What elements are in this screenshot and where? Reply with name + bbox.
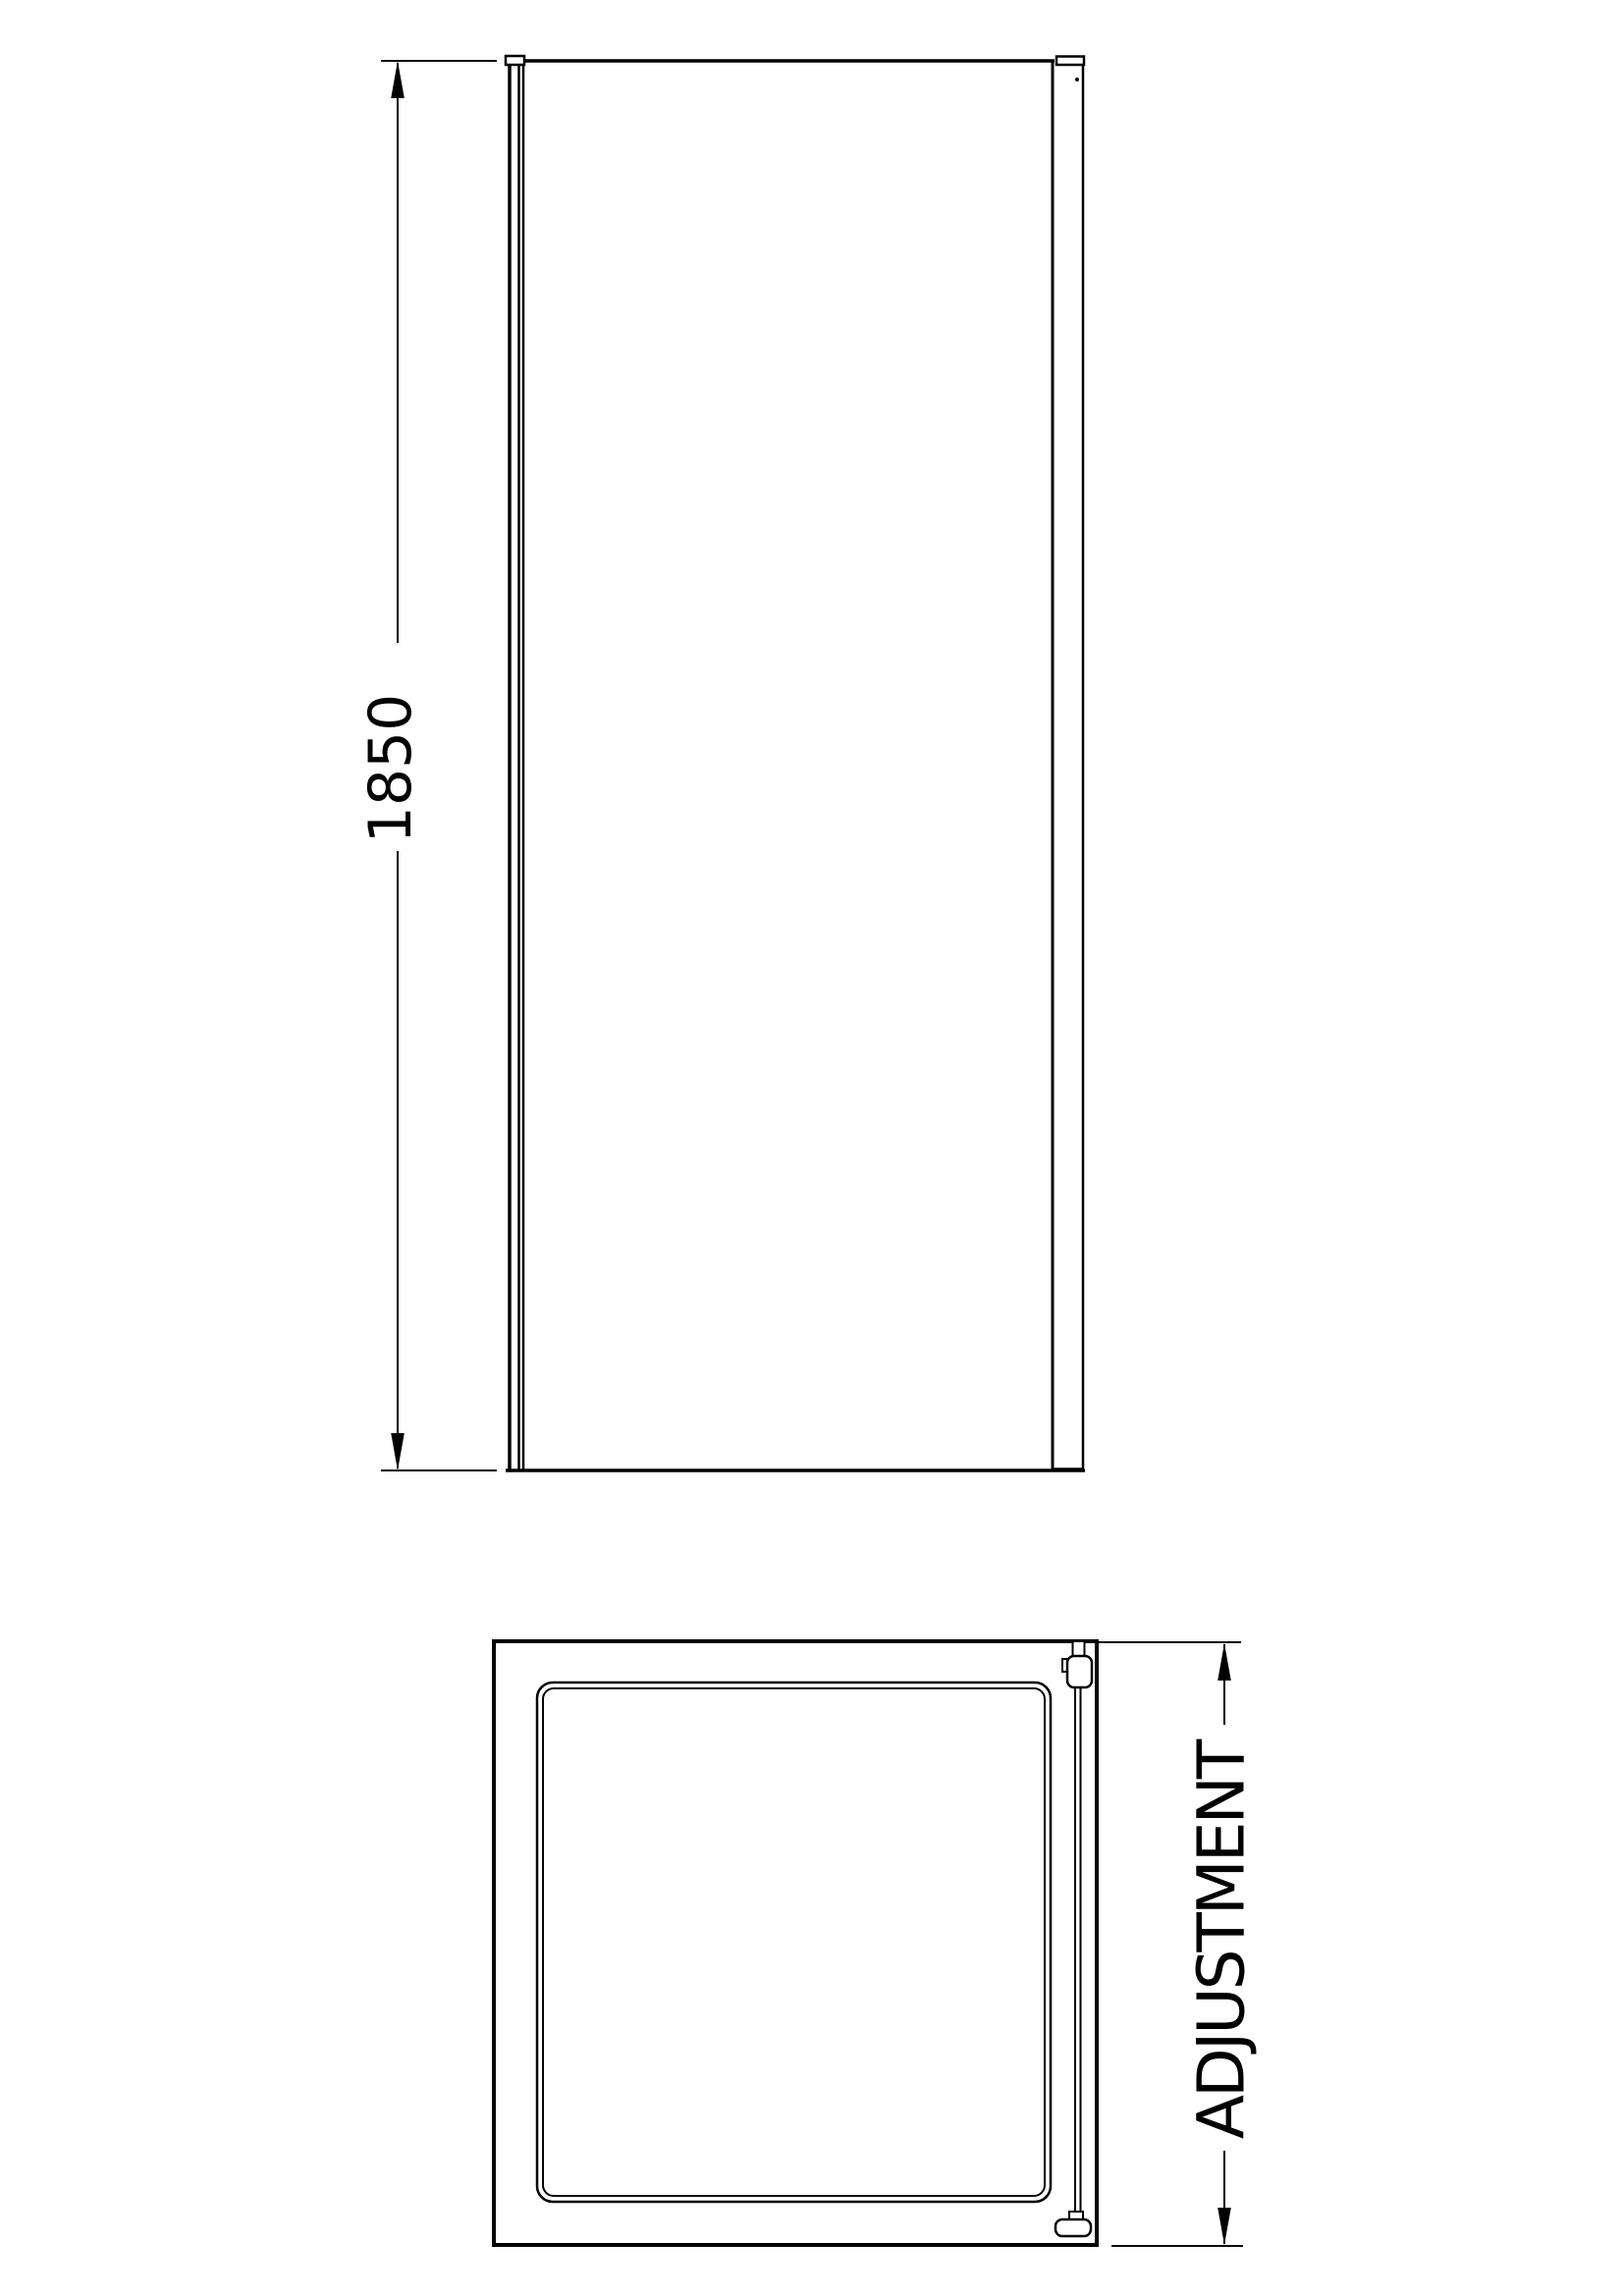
plan-view: ADJUSTMENT bbox=[494, 1641, 1260, 2246]
tray-inner-edge-inner-line bbox=[543, 1688, 1045, 2196]
fixing-screw-dot bbox=[1075, 78, 1079, 81]
top-wall-bracket bbox=[1062, 1641, 1092, 1687]
adjustment-dim-arrow-up bbox=[1217, 1643, 1231, 1681]
technical-drawing: 1850 bbox=[0, 0, 1623, 2296]
tray-inner-edge-outer-line bbox=[537, 1682, 1051, 2202]
bottom-wall-bracket bbox=[1055, 2212, 1091, 2236]
side-panel-elevation bbox=[506, 56, 1085, 1470]
left-wall-profile bbox=[506, 56, 524, 1469]
adjustment-dimension-label: ADJUSTMENT bbox=[1184, 1738, 1260, 2139]
height-dimension: 1850 bbox=[356, 61, 497, 1470]
tray-inner-edge bbox=[537, 1682, 1051, 2202]
tray-outer-edge bbox=[494, 1641, 1097, 2245]
glass-panel-plan bbox=[1075, 1684, 1081, 2216]
elevation-view: 1850 bbox=[356, 56, 1085, 1470]
left-profile-top-cap bbox=[506, 56, 524, 65]
adjustment-dim-arrow-down bbox=[1217, 2208, 1231, 2245]
right-profile-top-cap bbox=[1056, 57, 1084, 66]
height-dimension-label: 1850 bbox=[356, 694, 425, 844]
height-dim-arrow-down bbox=[391, 1433, 405, 1470]
height-dim-arrow-up bbox=[391, 61, 405, 98]
top-bracket-body bbox=[1067, 1656, 1092, 1687]
adjustment-dimension: ADJUSTMENT bbox=[1097, 1642, 1260, 2246]
drawing-page: 1850 bbox=[0, 0, 1623, 2296]
right-wall-profile bbox=[1052, 57, 1084, 1470]
bottom-bracket-foot bbox=[1055, 2219, 1091, 2236]
